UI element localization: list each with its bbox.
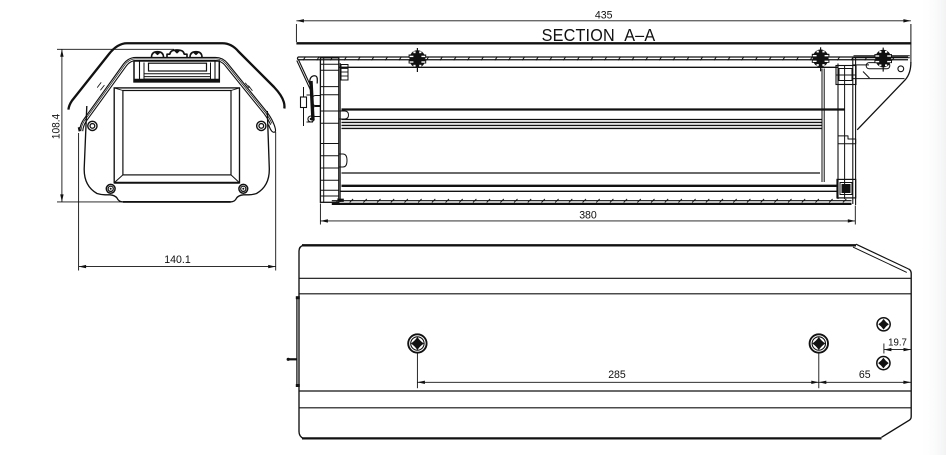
- svg-text:285: 285: [608, 369, 626, 381]
- svg-text:108.4: 108.4: [50, 114, 62, 139]
- svg-text:65: 65: [859, 369, 871, 381]
- svg-text:SECTION A–A: SECTION A–A: [542, 25, 656, 45]
- svg-text:380: 380: [579, 209, 597, 221]
- svg-text:140.1: 140.1: [164, 254, 190, 266]
- svg-text:19.7: 19.7: [888, 337, 907, 348]
- svg-text:435: 435: [595, 9, 613, 21]
